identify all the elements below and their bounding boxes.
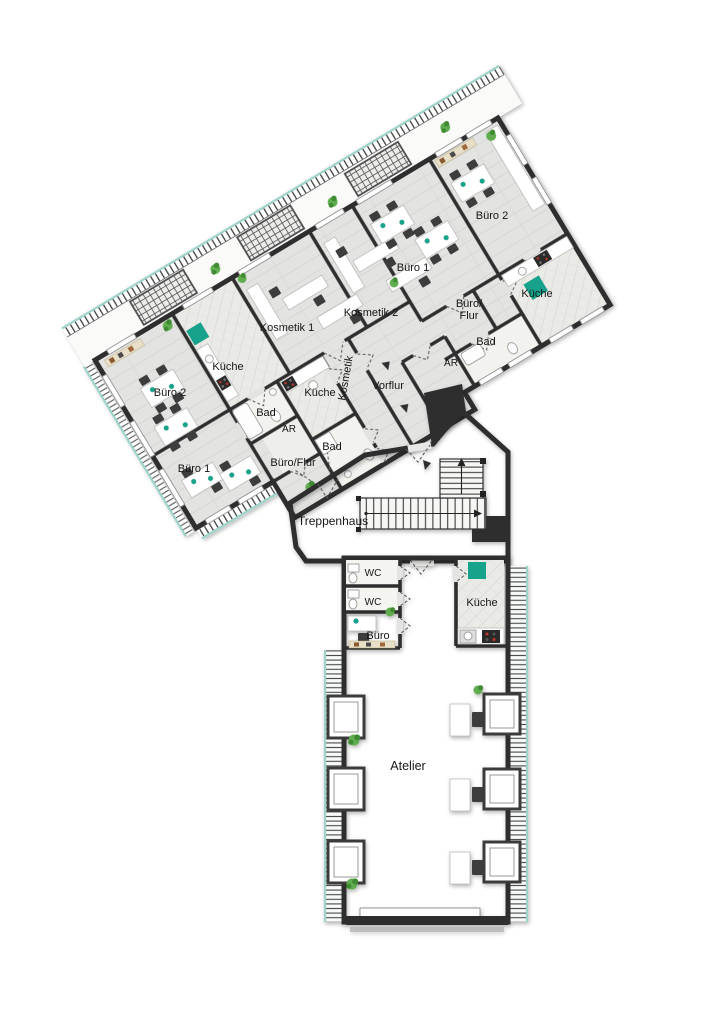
south-wall-shadow (350, 927, 504, 932)
room-label-bueroflur-rechts-1: Büro/ (456, 298, 483, 310)
room-label-buero-1-links: Büro 1 (178, 463, 210, 475)
room-label-ar-links: AR (282, 424, 296, 435)
door-opening (408, 445, 431, 449)
room-label-kueche-unten: Küche (466, 597, 497, 609)
room-label-kueche-rechts: Küche (521, 288, 552, 300)
floor-plan-canvas: Büro 2 Küche Büro 1 Bad AR Büro/Flur Kos… (0, 0, 724, 1024)
atelier-desk (450, 704, 485, 736)
room-label-treppenhaus: Treppenhaus (298, 514, 368, 528)
dormer-window (328, 696, 364, 738)
room-label-kueche-links: Küche (212, 361, 243, 373)
room-label-buero-1-rechts: Büro 1 (397, 262, 429, 274)
plant-icon (474, 685, 484, 694)
window-strip-south (360, 908, 480, 917)
room-label-buero-2-links: Büro 2 (154, 387, 186, 399)
room-label-bad-mitte: Bad (322, 441, 342, 453)
room-label-ar-rechts: AR (444, 358, 458, 369)
room-label-vorflur: Vorflur (372, 380, 404, 392)
room-label-kosmetik-1: Kosmetik 1 (260, 322, 314, 334)
room-label-wc-2: WC (365, 597, 382, 608)
atelier-desk (450, 852, 485, 884)
dormer-window (328, 768, 364, 810)
room-label-bad-links: Bad (256, 407, 276, 419)
dormer-window (484, 769, 520, 809)
lower-wing (325, 558, 527, 932)
dormer-window (328, 841, 364, 883)
dormer-window (484, 694, 520, 734)
floor-plan-page: Büro 2 Küche Büro 1 Bad AR Büro/Flur Kos… (0, 0, 724, 1024)
room-label-wc-1: WC (365, 568, 382, 579)
dormer-window (484, 842, 520, 882)
room-label-atelier: Atelier (390, 759, 425, 773)
room-label-kueche-mitte: Küche (304, 387, 335, 399)
direction-arrow-icon (423, 460, 431, 470)
south-wall (346, 916, 508, 925)
room-label-bueroflur-links: Büro/Flur (270, 457, 316, 469)
room-label-bad-rechts: Bad (476, 336, 496, 348)
room-label-kosmetik-2: Kosmetik 2 (344, 307, 398, 319)
room-label-buero-unten: Büro (366, 630, 389, 642)
room-label-bueroflur-rechts-2: Flur (460, 310, 479, 322)
room-label-buero-2-rechts: Büro 2 (476, 210, 508, 222)
atelier-desk (450, 779, 485, 811)
